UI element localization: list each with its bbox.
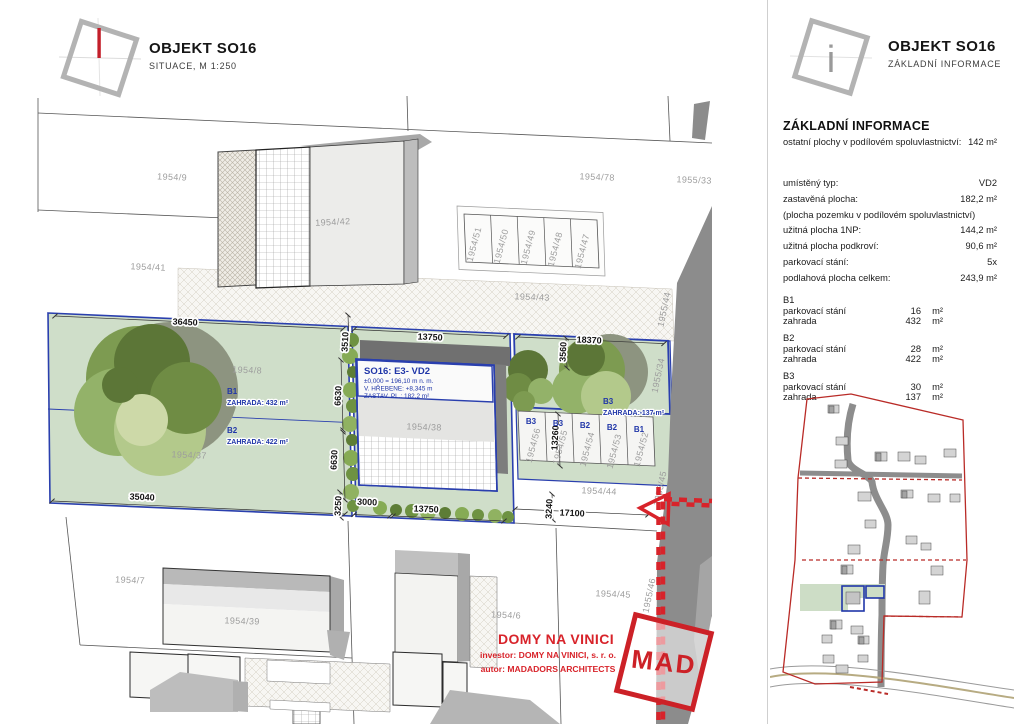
building-title: SO16: E3- VD2 bbox=[364, 366, 430, 377]
minimap-buildings bbox=[822, 405, 960, 673]
info-row: (plocha pozemku v podílovém spoluvlastni… bbox=[783, 208, 997, 224]
info-rows: umístěný typ:VD2 zastavěná plocha:182,2 … bbox=[783, 176, 997, 287]
building-label-box: SO16: E3- VD2 ±0,000 = 196,10 m n. m. V.… bbox=[357, 360, 493, 402]
parcel-1954-7: 1954/7 bbox=[115, 574, 145, 585]
panel-title: OBJEKT SO16 bbox=[888, 38, 1001, 55]
dim-3510: 3510 bbox=[339, 332, 350, 353]
unit-block-b2: B2 parkovací stání28m² zahrada422m² bbox=[783, 333, 997, 365]
unit-blocks: B1 parkovací stání16m² zahrada432m² B2 p… bbox=[783, 289, 997, 402]
site-plan-drawing: SO16: E3- VD2 ±0,000 = 196,10 m n. m. V.… bbox=[0, 0, 768, 724]
info-row: užitná plocha podkroví:90,6 m² bbox=[783, 239, 997, 255]
minimap-highlight bbox=[800, 584, 885, 611]
parcel-1954-44: 1954/44 bbox=[581, 485, 617, 497]
footer-credits: DOMY NA VINICI investor: DOMY NA VINICI,… bbox=[480, 631, 616, 674]
minimap-boundaries bbox=[783, 394, 967, 694]
unit-row: zahrada422m² bbox=[783, 354, 943, 364]
parcel-1954-38: 1954/38 bbox=[406, 421, 442, 432]
dim-13750-top: 13750 bbox=[417, 331, 442, 342]
dim-3000: 3000 bbox=[357, 497, 377, 508]
unit-row: parkovací stání28m² bbox=[783, 344, 943, 354]
parcel-1954-37: 1954/37 bbox=[171, 449, 207, 461]
zone-b3: B3 bbox=[603, 397, 614, 406]
parcel-1954-8: 1954/8 bbox=[232, 364, 262, 375]
info-row: podlahová plocha celkem:243,9 m² bbox=[783, 271, 997, 287]
info-icon: i bbox=[786, 8, 876, 104]
zone-b1: B1 bbox=[227, 387, 238, 396]
unit-block-b1: B1 parkovací stání16m² zahrada432m² bbox=[783, 295, 997, 327]
dim-3250: 3250 bbox=[332, 496, 343, 517]
dim-36450: 36450 bbox=[172, 316, 197, 327]
parcel-1954-6: 1954/6 bbox=[491, 609, 521, 620]
parcel-1954-41: 1954/41 bbox=[130, 261, 166, 273]
info-heading: ZÁKLADNÍ INFORMACE bbox=[783, 119, 997, 133]
author-line: autor: MADADORS ARCHITECTS bbox=[481, 664, 616, 674]
dim-3560: 3560 bbox=[557, 342, 568, 363]
unit-row: zahrada432m² bbox=[783, 316, 943, 326]
shared-area-label: ostatní plochy v podílovém spoluvlastnic… bbox=[783, 135, 961, 151]
dim-18370: 18370 bbox=[576, 334, 601, 345]
stall-b2-1: B2 bbox=[580, 421, 591, 430]
unit-row: parkovací stání16m² bbox=[783, 306, 943, 316]
dim-3240: 3240 bbox=[543, 499, 554, 520]
info-row: zastavěná plocha:182,2 m² bbox=[783, 192, 997, 208]
parcel-1954-45: 1954/45 bbox=[595, 588, 631, 600]
zone-b1-area: ZAHRADA: 432 m² bbox=[227, 400, 289, 407]
investor-line: investor: DOMY NA VINICI, s. r. o. bbox=[480, 650, 616, 660]
parcel-1954-39: 1954/39 bbox=[224, 615, 260, 626]
stall-b2-2: B2 bbox=[607, 423, 618, 432]
dim-35040: 35040 bbox=[129, 491, 154, 502]
shared-area-row: ostatní plochy v podílovém spoluvlastnic… bbox=[783, 135, 997, 151]
parcel-1954-42: 1954/42 bbox=[315, 216, 351, 228]
panel-subtitle: ZÁKLADNÍ INFORMACE bbox=[888, 59, 1001, 69]
right-header: i OBJEKT SO16 ZÁKLADNÍ INFORMACE bbox=[786, 8, 1001, 104]
dim-6630-lower: 6630 bbox=[328, 450, 339, 471]
parcel-1954-78: 1954/78 bbox=[579, 171, 615, 183]
info-row: užitná plocha 1NP:144,2 m² bbox=[783, 223, 997, 239]
svg-text:i: i bbox=[827, 39, 835, 81]
approval-stamp: MAD bbox=[617, 615, 712, 710]
minimap-roads bbox=[770, 404, 1014, 708]
info-row: umístěný typ:VD2 bbox=[783, 176, 997, 192]
dim-6630-upper: 6630 bbox=[332, 386, 343, 407]
building-ridge-height: V. HŘEBENE: +8,345 m bbox=[364, 384, 433, 393]
locator-minimap bbox=[770, 390, 1014, 722]
zone-b2: B2 bbox=[227, 426, 238, 435]
project-name: DOMY NA VINICI bbox=[498, 631, 614, 647]
bottom-buildings bbox=[130, 550, 560, 724]
stall-b3-2: B3 bbox=[553, 419, 564, 428]
stall-b1: B1 bbox=[634, 425, 645, 434]
shared-area-value: 142 m² bbox=[968, 135, 997, 151]
parcel-1955-46: 1955/46 bbox=[641, 577, 658, 614]
stall-b3-1: B3 bbox=[526, 417, 537, 426]
parcel-1954-9: 1954/9 bbox=[157, 171, 187, 182]
zone-b2-area: ZAHRADA: 422 m² bbox=[227, 439, 289, 446]
dim-17100: 17100 bbox=[559, 507, 584, 518]
building-built-area: ZASTAV. PL.: 182,2 m² bbox=[364, 393, 429, 400]
info-row: parkovací stání:5x bbox=[783, 255, 997, 271]
zone-b3-area: ZAHRADA: 137 m² bbox=[603, 410, 665, 417]
info-panel: i OBJEKT SO16 ZÁKLADNÍ INFORMACE ZÁKLADN… bbox=[768, 0, 1024, 724]
dim-13750-bottom: 13750 bbox=[413, 503, 438, 514]
building-elevation: ±0,000 = 196,10 m n. m. bbox=[364, 378, 434, 385]
parcel-1955-33: 1955/33 bbox=[676, 174, 712, 186]
parcel-1954-43: 1954/43 bbox=[514, 291, 550, 303]
